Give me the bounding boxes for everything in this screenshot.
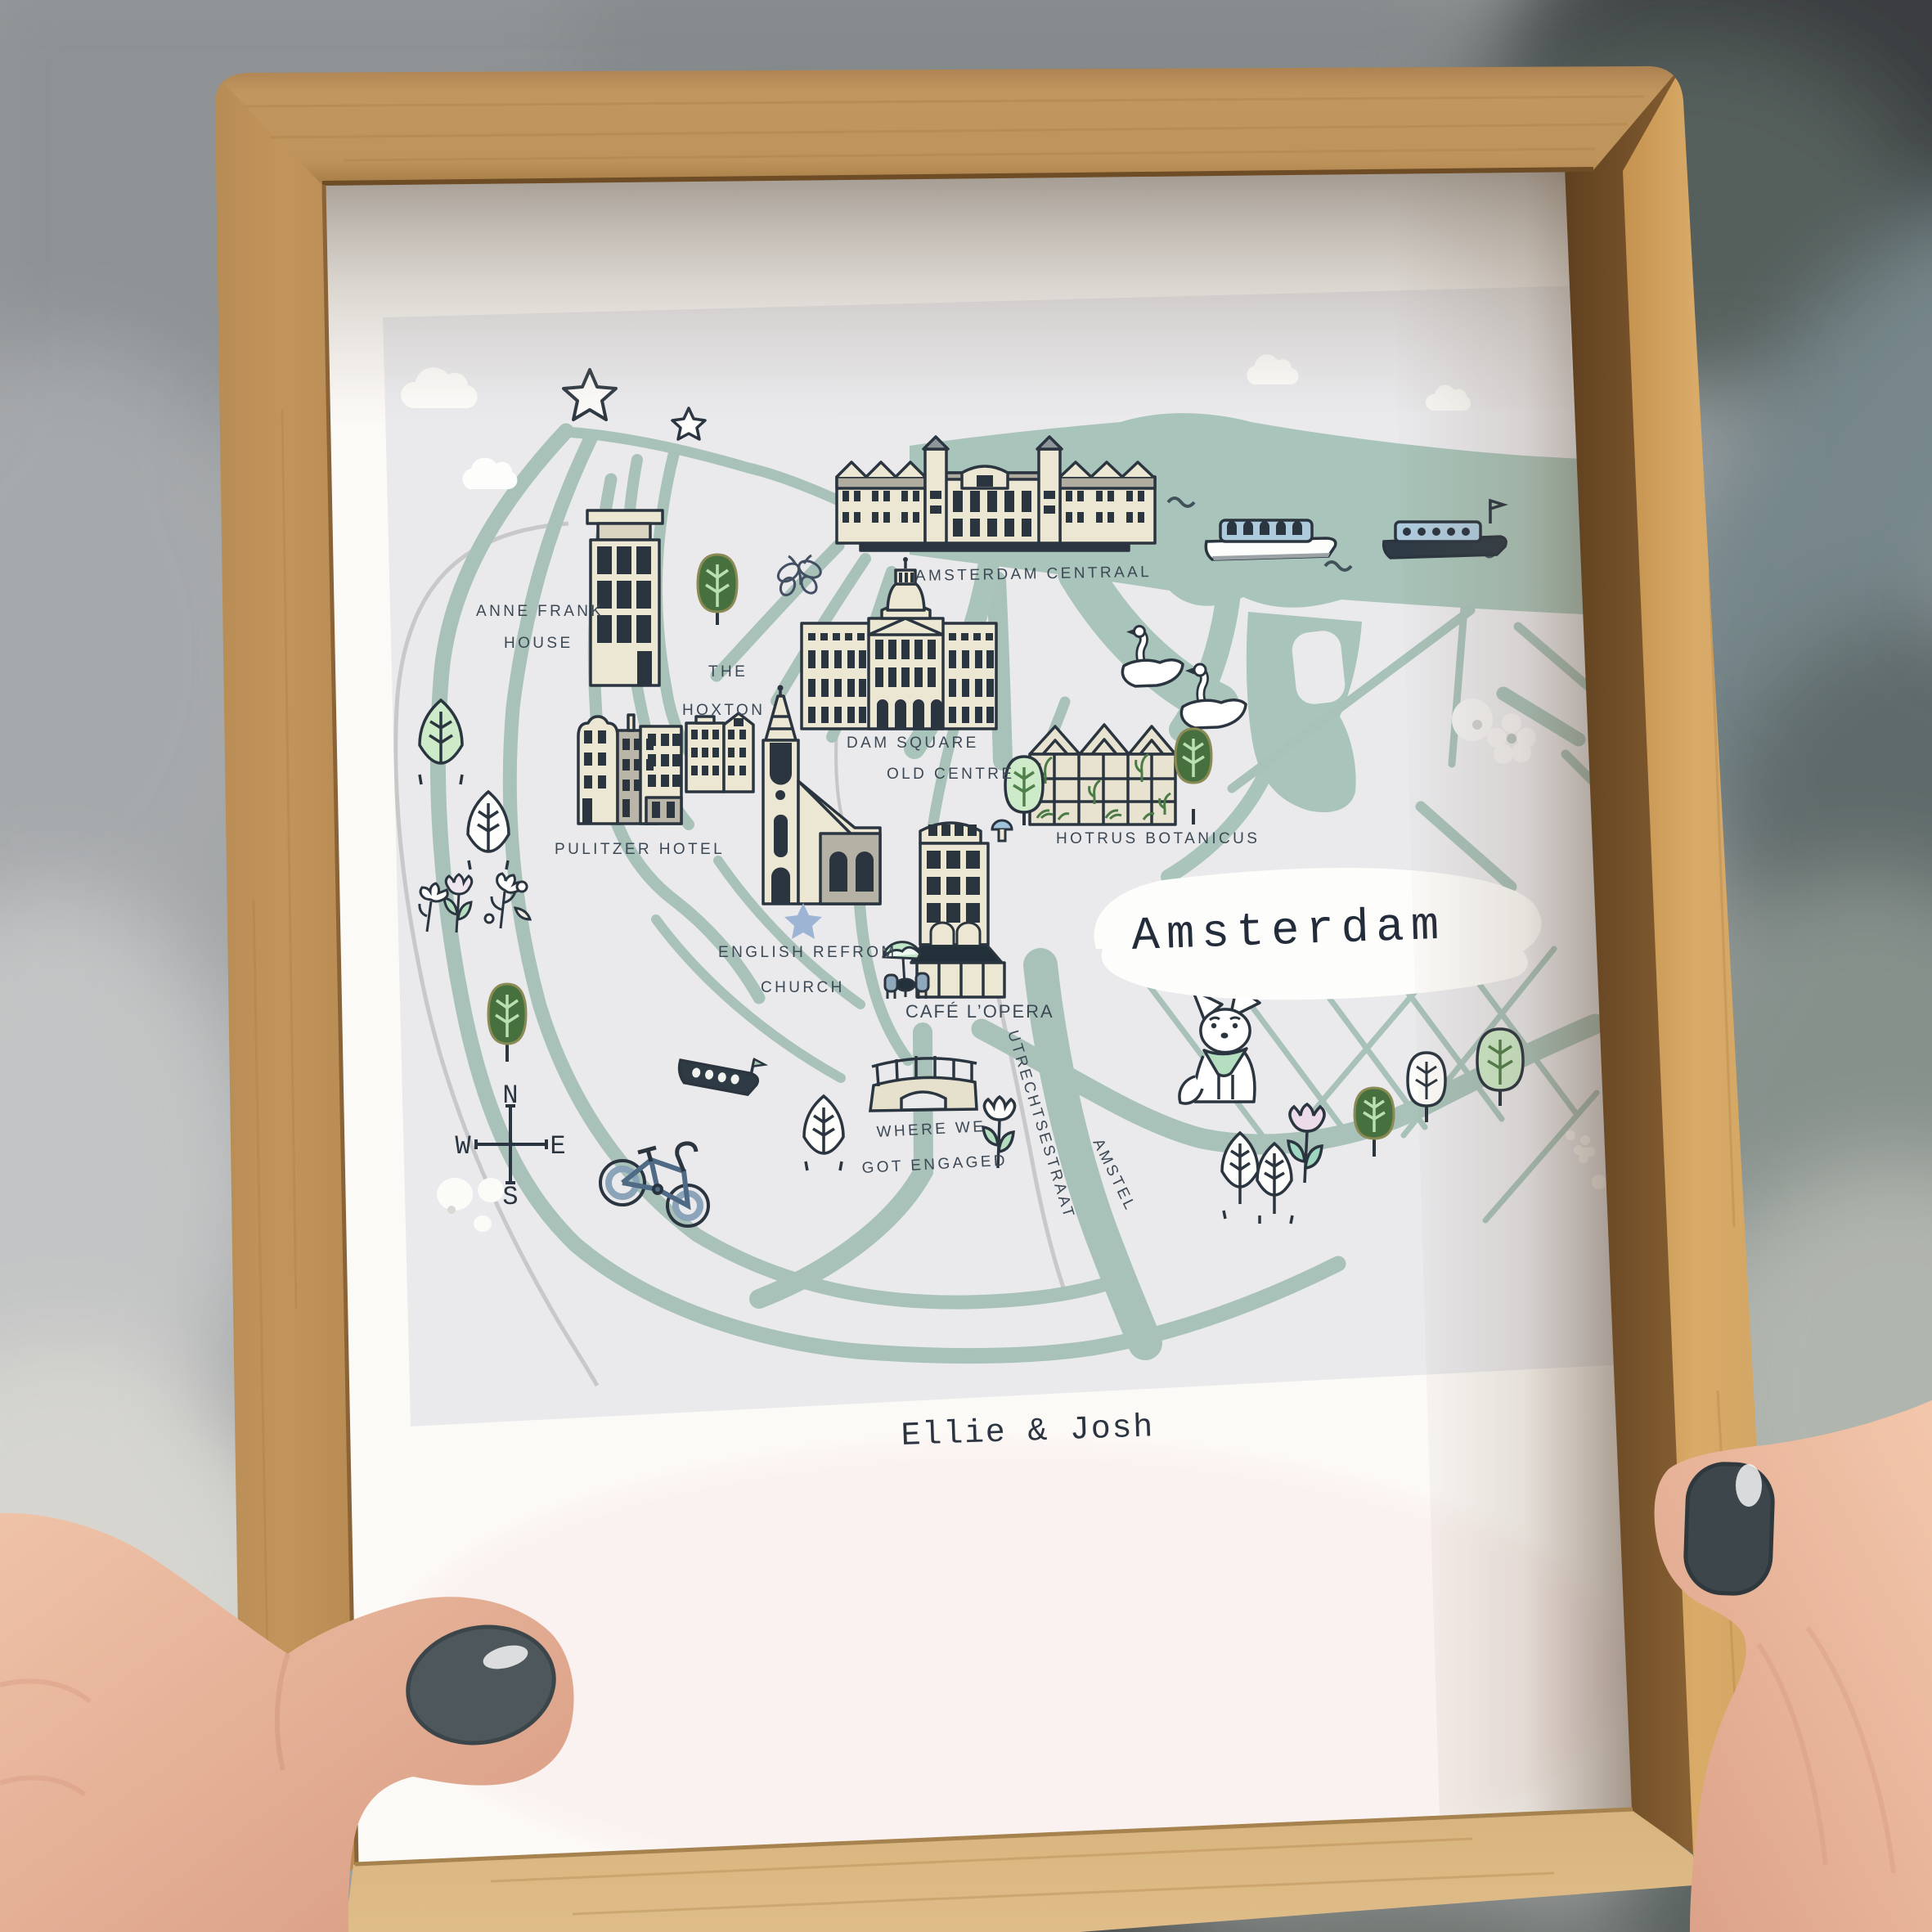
svg-text:DAM SQUARE: DAM SQUARE [847,735,979,752]
svg-text:ENGLISH REFROM: ENGLISH REFROM [718,944,897,961]
svg-text:ANNE FRANK: ANNE FRANK [476,603,604,620]
svg-text:Amsterdam: Amsterdam [1130,901,1446,964]
svg-text:CHURCH: CHURCH [761,979,845,996]
svg-text:HOXTON: HOXTON [682,702,765,719]
svg-text:PULITZER HOTEL: PULITZER HOTEL [555,841,725,858]
svg-text:CAFÉ L’OPERA: CAFÉ L’OPERA [905,1001,1054,1022]
svg-text:S: S [502,1182,518,1212]
svg-text:OLD CENTRE: OLD CENTRE [887,766,1014,783]
svg-text:HOTRUS BOTANICUS: HOTRUS BOTANICUS [1056,830,1260,847]
svg-text:THE: THE [708,663,748,681]
svg-text:HOUSE: HOUSE [504,635,573,652]
svg-text:N: N [502,1081,518,1111]
svg-text:W: W [455,1131,471,1161]
svg-text:E: E [550,1131,565,1161]
